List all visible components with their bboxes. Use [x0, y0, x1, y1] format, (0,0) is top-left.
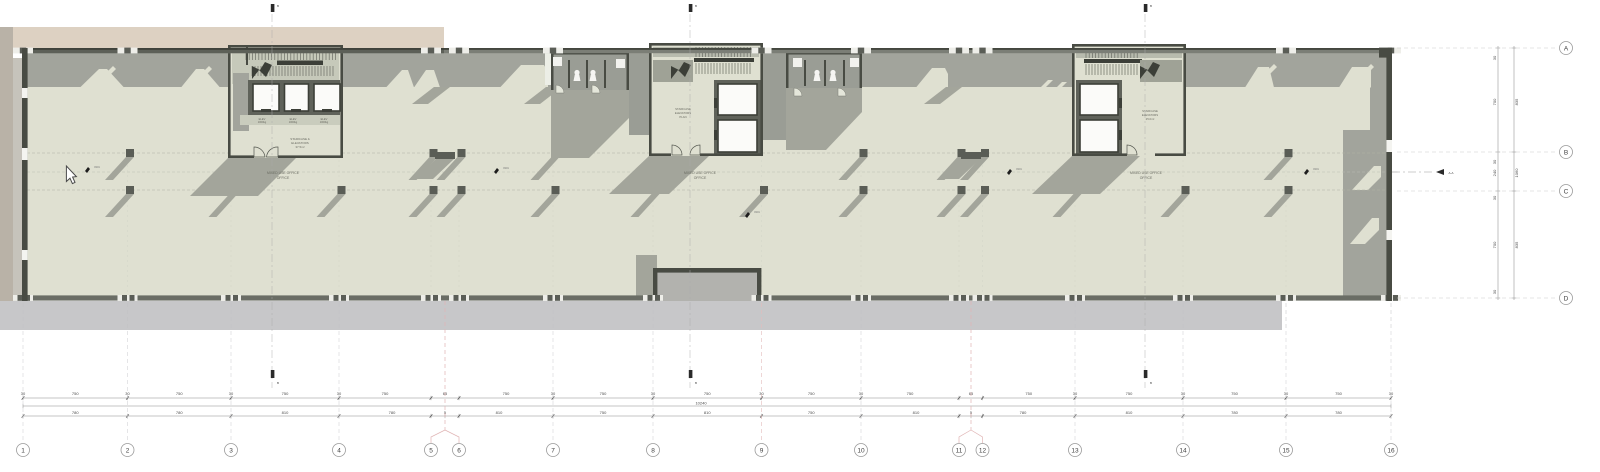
svg-text:65: 65 [443, 391, 448, 396]
svg-text:0301: 0301 [754, 210, 760, 214]
svg-text:750: 750 [1231, 391, 1238, 396]
svg-text:12: 12 [979, 447, 987, 454]
svg-text:MIXED USE OFFICE: MIXED USE OFFICE [684, 171, 717, 175]
svg-text:MIXED USE OFFICE: MIXED USE OFFICE [1130, 171, 1163, 175]
svg-text:25.0m²: 25.0m² [1146, 117, 1155, 121]
svg-text:30: 30 [1181, 391, 1186, 396]
svg-text:750: 750 [1335, 391, 1342, 396]
svg-text:B: B [695, 381, 697, 385]
svg-text:2: 2 [126, 447, 130, 454]
svg-text:30: 30 [21, 391, 26, 396]
svg-text:30: 30 [1284, 391, 1289, 396]
svg-text:B: B [1564, 149, 1568, 156]
svg-text:30: 30 [229, 391, 234, 396]
svg-text:750: 750 [808, 391, 815, 396]
svg-text:750: 750 [600, 410, 607, 415]
svg-text:30: 30 [859, 391, 864, 396]
svg-text:10: 10 [857, 447, 865, 454]
svg-text:750: 750 [282, 391, 289, 396]
svg-text:B: B [277, 4, 279, 8]
svg-text:835: 835 [1514, 98, 1519, 105]
svg-text:65: 65 [969, 391, 974, 396]
svg-text:30: 30 [1073, 391, 1078, 396]
svg-text:4: 4 [337, 447, 341, 454]
svg-text:37.5m²: 37.5m² [295, 145, 304, 149]
svg-text:750: 750 [808, 410, 815, 415]
svg-text:16: 16 [1387, 447, 1395, 454]
svg-text:780: 780 [389, 410, 396, 415]
svg-text:750: 750 [600, 391, 607, 396]
svg-text:0301: 0301 [503, 166, 509, 170]
svg-text:30: 30 [651, 391, 656, 396]
svg-text:835: 835 [1514, 241, 1519, 248]
svg-text:A: A [1564, 45, 1569, 52]
svg-text:B: B [277, 381, 279, 385]
svg-text:B: B [1150, 381, 1152, 385]
svg-text:750: 750 [72, 391, 79, 396]
svg-text:810: 810 [1126, 410, 1133, 415]
svg-text:D: D [1564, 295, 1569, 302]
svg-text:7: 7 [551, 447, 555, 454]
svg-text:810: 810 [496, 410, 503, 415]
svg-text:B: B [1150, 4, 1152, 8]
svg-text:B: B [695, 4, 697, 8]
svg-text:14: 14 [1179, 447, 1187, 454]
svg-text:750: 750 [382, 391, 389, 396]
svg-text:13: 13 [1071, 447, 1079, 454]
svg-text:9: 9 [760, 447, 764, 454]
svg-text:30: 30 [1492, 195, 1497, 200]
svg-text:11: 11 [956, 447, 963, 454]
svg-text:0301: 0301 [1016, 167, 1022, 171]
svg-text:0301: 0301 [1313, 167, 1319, 171]
svg-text:780: 780 [1020, 410, 1027, 415]
svg-text:8: 8 [651, 447, 655, 454]
svg-text:30: 30 [1492, 159, 1497, 164]
svg-text:810: 810 [704, 410, 711, 415]
svg-text:15: 15 [1282, 447, 1290, 454]
svg-text:700: 700 [1492, 98, 1497, 105]
svg-text:1060: 1060 [1514, 168, 1519, 178]
svg-text:780: 780 [176, 410, 183, 415]
svg-text:OFFICE: OFFICE [1140, 176, 1153, 180]
svg-text:PLAN: PLAN [679, 115, 686, 119]
svg-text:750: 750 [176, 391, 183, 396]
svg-text:1000kg: 1000kg [258, 120, 267, 124]
svg-text:30: 30 [337, 391, 342, 396]
svg-text:3: 3 [229, 447, 233, 454]
svg-text:750: 750 [503, 391, 510, 396]
svg-text:30: 30 [1492, 289, 1497, 294]
svg-text:0301: 0301 [94, 165, 100, 169]
svg-text:10240: 10240 [695, 401, 707, 406]
svg-text:30: 30 [125, 391, 130, 396]
svg-text:30: 30 [759, 391, 764, 396]
svg-text:C: C [1564, 188, 1569, 195]
svg-text:30: 30 [551, 391, 556, 396]
svg-text:780: 780 [72, 410, 79, 415]
svg-text:700: 700 [1492, 241, 1497, 248]
svg-text:810: 810 [913, 410, 920, 415]
svg-text:780: 780 [1231, 410, 1238, 415]
svg-text:1: 1 [21, 447, 25, 454]
svg-text:750: 750 [1025, 391, 1032, 396]
svg-text:OFFICE: OFFICE [694, 176, 707, 180]
svg-text:30: 30 [1389, 391, 1394, 396]
svg-text:780: 780 [1335, 410, 1342, 415]
svg-text:1000kg: 1000kg [320, 120, 329, 124]
svg-text:810: 810 [282, 410, 289, 415]
svg-text:750: 750 [1126, 391, 1133, 396]
svg-text:6: 6 [457, 447, 461, 454]
svg-text:OFFICE: OFFICE [277, 176, 290, 180]
svg-text:240: 240 [1492, 169, 1497, 176]
svg-text:5: 5 [429, 447, 433, 454]
svg-text:1000kg: 1000kg [289, 120, 298, 124]
svg-text:750: 750 [704, 391, 711, 396]
svg-text:30: 30 [1492, 55, 1497, 60]
svg-text:A-A: A-A [1448, 171, 1453, 175]
svg-text:750: 750 [907, 391, 914, 396]
